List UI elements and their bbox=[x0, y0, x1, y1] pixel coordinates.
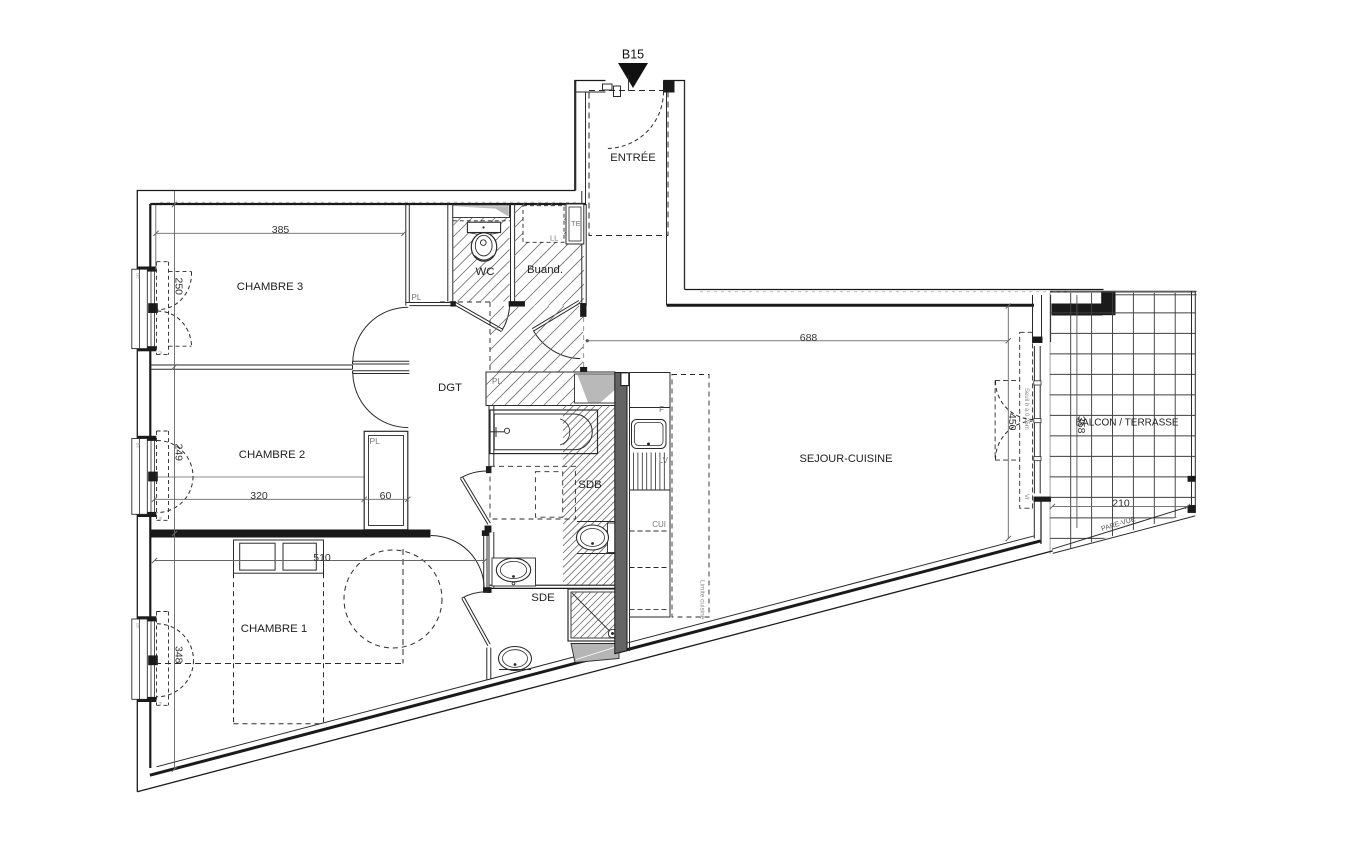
svg-text:WC: WC bbox=[476, 266, 495, 278]
svg-text:CUI: CUI bbox=[652, 520, 666, 529]
svg-text:348: 348 bbox=[173, 646, 185, 664]
svg-text:510: 510 bbox=[313, 552, 331, 564]
svg-text:ENTRÉE: ENTRÉE bbox=[610, 151, 655, 164]
svg-text:CHAMBRE 2: CHAMBRE 2 bbox=[239, 449, 305, 461]
svg-text:PL: PL bbox=[370, 436, 381, 446]
svg-text:SDE: SDE bbox=[531, 592, 555, 604]
svg-text:PL: PL bbox=[492, 377, 502, 386]
svg-text:Buand.: Buand. bbox=[527, 264, 563, 276]
svg-text:210: 210 bbox=[1112, 498, 1130, 510]
svg-text:249: 249 bbox=[173, 444, 185, 462]
svg-text:PL: PL bbox=[412, 293, 422, 302]
svg-text:688: 688 bbox=[800, 332, 818, 344]
svg-text:BALCON / TERRASSE: BALCON / TERRASSE bbox=[1075, 418, 1179, 429]
svg-text:250: 250 bbox=[173, 278, 185, 296]
svg-text:DGT: DGT bbox=[438, 382, 462, 394]
svg-text:SEJOUR-CUISINE: SEJOUR-CUISINE bbox=[800, 453, 893, 465]
svg-text:CHAMBRE 1: CHAMBRE 1 bbox=[241, 623, 307, 635]
svg-text:60: 60 bbox=[380, 490, 392, 502]
svg-text:Bc: Bc bbox=[136, 623, 141, 629]
svg-text:LL: LL bbox=[550, 234, 558, 243]
svg-text:LV: LV bbox=[659, 456, 669, 465]
svg-text:Bc: Bc bbox=[136, 443, 141, 449]
svg-text:F: F bbox=[659, 405, 664, 414]
svg-text:CHAMBRE 3: CHAMBRE 3 bbox=[237, 281, 303, 293]
svg-text:Seuil h à 0,25m: Seuil h à 0,25m bbox=[1023, 388, 1029, 430]
svg-text:Vr: Vr bbox=[1023, 494, 1029, 500]
svg-text:358: 358 bbox=[1075, 416, 1087, 434]
svg-text:450: 450 bbox=[1006, 413, 1018, 431]
svg-text:Limite cuisine: Limite cuisine bbox=[699, 580, 706, 620]
svg-text:SDB: SDB bbox=[578, 479, 601, 491]
svg-text:TE: TE bbox=[571, 219, 581, 228]
svg-text:Bc: Bc bbox=[136, 273, 141, 279]
svg-text:385: 385 bbox=[272, 224, 290, 236]
svg-text:320: 320 bbox=[250, 490, 268, 502]
svg-text:B15: B15 bbox=[622, 48, 644, 62]
